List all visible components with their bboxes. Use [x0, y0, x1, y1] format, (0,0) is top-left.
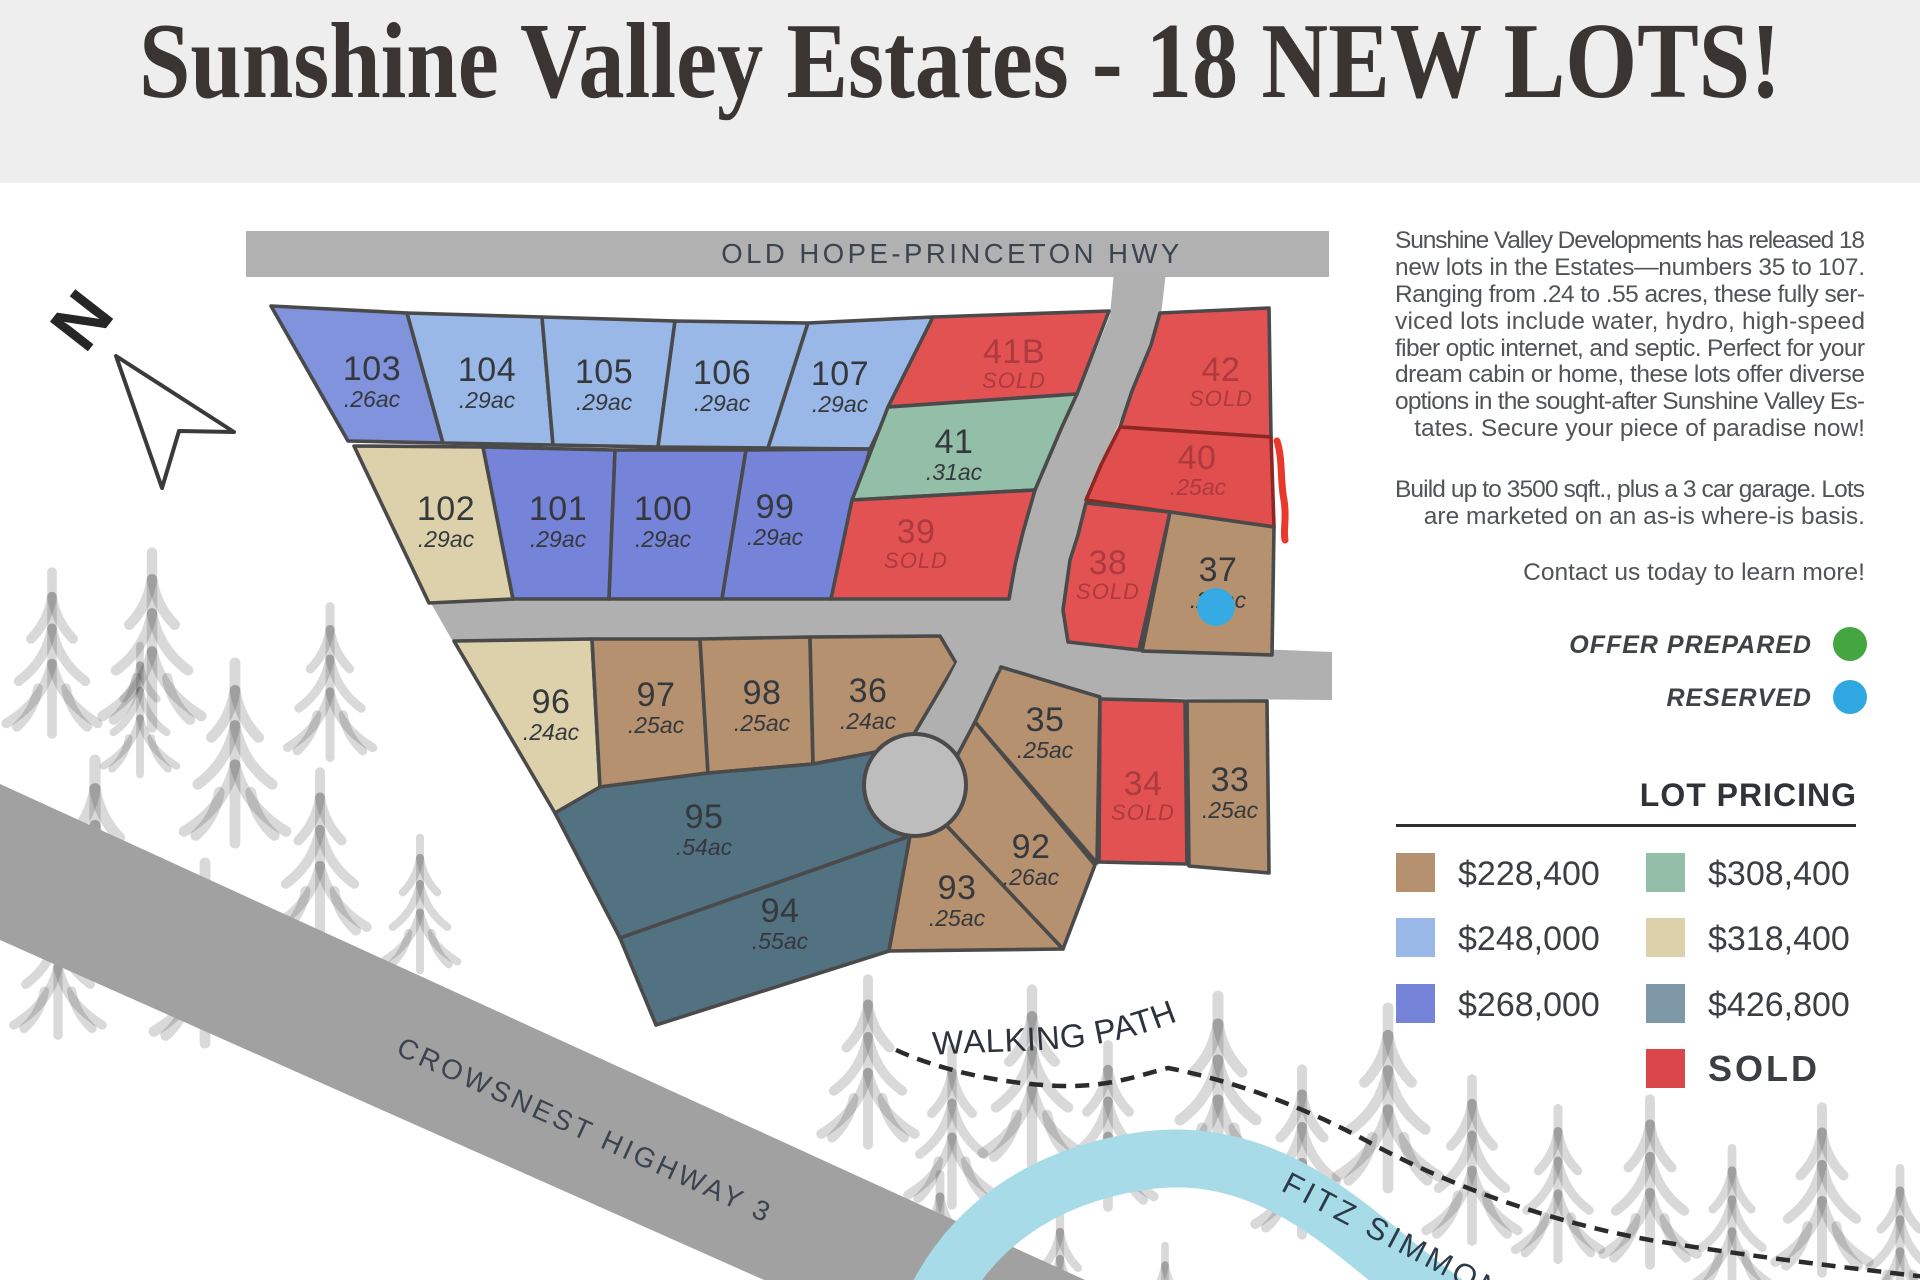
svg-text:Build up to 3500 sqft., plus a: Build up to 3500 sqft., plus a 3 car gar… — [1395, 476, 1865, 503]
svg-text:.29ac: .29ac — [635, 526, 692, 552]
svg-text:Contact us today to learn more: Contact us today to learn more! — [1523, 559, 1865, 586]
svg-text:99: 99 — [756, 488, 795, 526]
svg-text:viced lots include water, hydr: viced lots include water, hydro, high-sp… — [1395, 308, 1865, 335]
svg-text:Sunshine Valley Estates - 18 N: Sunshine Valley Estates - 18 NEW LOTS! — [139, 2, 1781, 121]
svg-text:.24ac: .24ac — [523, 719, 580, 745]
svg-text:37: 37 — [1199, 551, 1238, 589]
svg-text:.29ac: .29ac — [694, 390, 751, 416]
svg-text:SOLD: SOLD — [1076, 579, 1140, 604]
svg-text:OFFER PREPARED: OFFER PREPARED — [1569, 631, 1812, 659]
svg-text:92: 92 — [1012, 828, 1051, 866]
svg-text:SOLD: SOLD — [884, 548, 948, 573]
svg-text:100: 100 — [634, 490, 692, 528]
svg-text:40: 40 — [1178, 439, 1217, 477]
svg-text:39: 39 — [897, 513, 936, 551]
svg-text:SOLD: SOLD — [982, 368, 1046, 393]
svg-text:.54ac: .54ac — [676, 834, 733, 860]
svg-text:tates. Secure your piece of pa: tates. Secure your piece of paradise now… — [1414, 415, 1865, 442]
svg-text:.26ac: .26ac — [1003, 864, 1060, 890]
svg-text:.25ac: .25ac — [1017, 737, 1074, 763]
svg-text:OLD HOPE-PRINCETON HWY: OLD HOPE-PRINCETON HWY — [721, 238, 1183, 269]
svg-text:41: 41 — [935, 423, 974, 461]
svg-text:.26ac: .26ac — [344, 386, 401, 412]
svg-text:41B: 41B — [983, 333, 1045, 371]
svg-text:.29ac: .29ac — [576, 389, 633, 415]
svg-text:.25ac: .25ac — [1170, 474, 1227, 500]
svg-text:42: 42 — [1202, 351, 1241, 389]
svg-text:$308,400: $308,400 — [1708, 855, 1850, 893]
svg-text:new lots in the Estates—number: new lots in the Estates—numbers 35 to 10… — [1395, 254, 1865, 281]
svg-text:RESERVED: RESERVED — [1666, 684, 1812, 712]
svg-text:103: 103 — [343, 350, 401, 388]
svg-text:$228,400: $228,400 — [1458, 855, 1600, 893]
svg-text:.24ac: .24ac — [840, 708, 897, 734]
svg-text:.31ac: .31ac — [926, 459, 983, 485]
svg-text:$268,000: $268,000 — [1458, 986, 1600, 1024]
svg-text:.29ac: .29ac — [812, 391, 869, 417]
svg-text:94: 94 — [761, 892, 800, 930]
svg-text:are marketed on an as-is where: are marketed on an as-is where-is basis. — [1424, 503, 1865, 530]
svg-text:$426,800: $426,800 — [1708, 986, 1850, 1024]
svg-text:.29ac: .29ac — [747, 524, 804, 550]
svg-text:38: 38 — [1089, 544, 1128, 582]
svg-text:Sunshine Valley Developments h: Sunshine Valley Developments has release… — [1395, 227, 1865, 254]
svg-text:97: 97 — [637, 676, 676, 714]
svg-text:SOLD: SOLD — [1111, 800, 1175, 825]
svg-text:SOLD: SOLD — [1708, 1048, 1820, 1089]
svg-text:33: 33 — [1211, 761, 1250, 799]
svg-text:107: 107 — [811, 355, 869, 393]
svg-text:36: 36 — [849, 672, 888, 710]
svg-text:$248,000: $248,000 — [1458, 920, 1600, 958]
svg-text:$318,400: $318,400 — [1708, 920, 1850, 958]
svg-text:.25ac: .25ac — [628, 712, 685, 738]
svg-text:93: 93 — [938, 869, 977, 907]
svg-text:106: 106 — [693, 354, 751, 392]
svg-text:98: 98 — [743, 674, 782, 712]
svg-text:Ranging from .24 to .55 acres,: Ranging from .24 to .55 acres, these ful… — [1395, 281, 1865, 308]
svg-text:102: 102 — [417, 490, 475, 528]
svg-text:.29ac: .29ac — [530, 526, 587, 552]
svg-text:.29ac: .29ac — [418, 526, 475, 552]
svg-text:.25ac: .25ac — [929, 905, 986, 931]
svg-text:SOLD: SOLD — [1189, 386, 1253, 411]
svg-text:96: 96 — [532, 683, 571, 721]
svg-text:.29ac: .29ac — [459, 387, 516, 413]
svg-text:.25ac: .25ac — [734, 710, 791, 736]
svg-text:dream cabin or home, these lot: dream cabin or home, these lots offer di… — [1395, 361, 1865, 388]
svg-text:options in the sought-after Su: options in the sought-after Sunshine Val… — [1395, 388, 1865, 415]
svg-text:.55ac: .55ac — [752, 928, 809, 954]
svg-text:34: 34 — [1124, 765, 1163, 803]
svg-text:35: 35 — [1026, 701, 1065, 739]
svg-text:fiber optic internet, and sept: fiber optic internet, and septic. Perfec… — [1395, 335, 1865, 362]
svg-text:95: 95 — [685, 798, 724, 836]
svg-text:101: 101 — [529, 490, 587, 528]
svg-text:104: 104 — [458, 351, 516, 389]
svg-text:.25ac: .25ac — [1202, 797, 1259, 823]
svg-text:LOT PRICING: LOT PRICING — [1640, 777, 1857, 813]
svg-text:105: 105 — [575, 353, 633, 391]
